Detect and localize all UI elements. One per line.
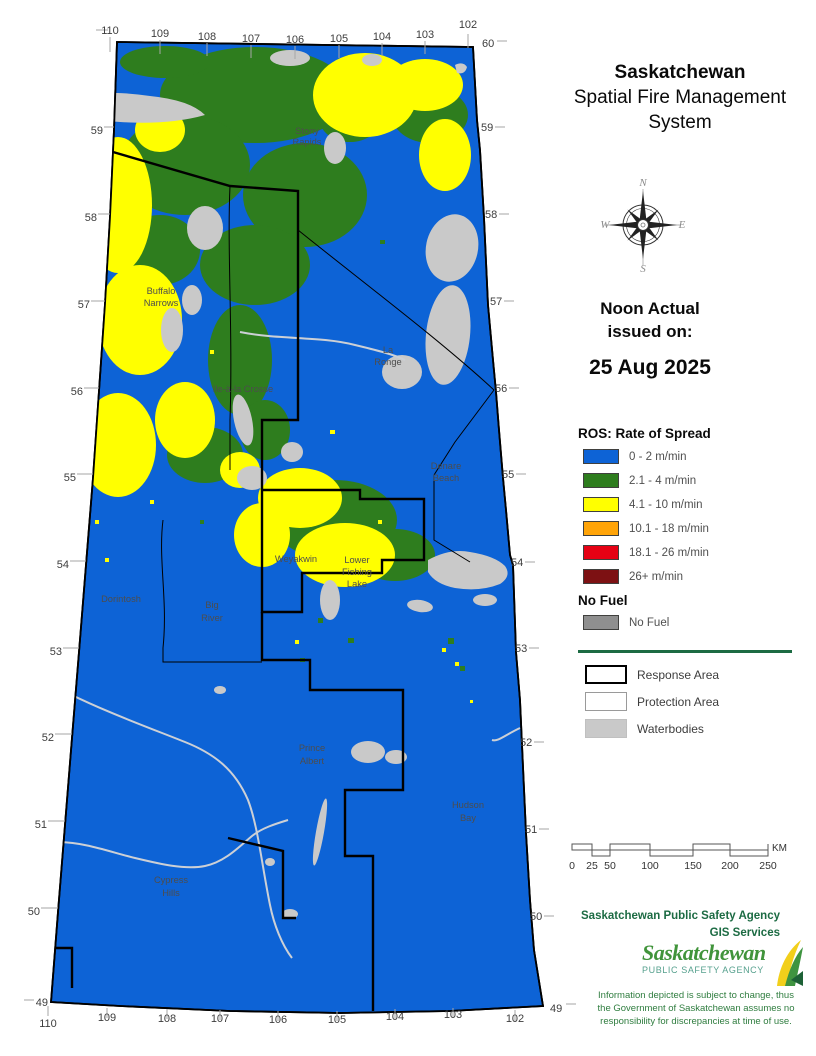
place-denare-beach: Beach [433,473,459,483]
wheat-leaf-icon [772,938,804,988]
lat-label: 60 [482,38,494,50]
legend-row-response-area: Response Area [585,665,719,684]
lat-label: 49 [550,1003,562,1015]
compass-e-label: E [678,219,686,231]
lon-label: 104 [373,31,391,43]
scale-tick-label: 250 [759,860,777,872]
agency-logo: Saskatchewan PUBLIC SAFETY AGENCY [642,942,800,992]
response-area-swatch [585,665,627,684]
lat-label: 58 [485,209,497,221]
place-stony-rapids: Stony [295,126,319,136]
swatch-gray [583,615,619,630]
place-cypress-hills: Cypress [154,875,188,885]
legend-row-10-18: 10.1 - 18 m/min [583,521,711,536]
place-dorintosh: Dorintosh [101,594,141,604]
compass-rose-icon: N E S W [598,177,688,273]
saskatchewan-map: 110 109 108 107 106 105 104 103 102 110 … [0,0,580,1056]
compass-w-label: W [600,219,610,231]
lon-label: 105 [330,33,348,45]
scale-bar: KM 0 25 50 100 150 200 250 [566,838,796,878]
place-denare-beach: Denare [431,461,462,471]
lon-label: 102 [506,1013,524,1025]
issued-line2: issued on: [540,320,760,343]
lon-label: 107 [211,1013,229,1025]
place-lower-fishing-lake: Fishing [342,567,372,577]
disclaimer-line1: Information depicted is subject to chang… [576,989,816,1002]
lat-label: 52 [42,732,54,744]
swatch-red [583,545,619,560]
legend-row-no-fuel: No Fuel [583,615,711,630]
lon-label: 108 [198,31,216,43]
lon-label: 102 [459,19,477,31]
compass-s-label: S [640,263,646,273]
place-weyakwin: Weyakwin [275,554,317,564]
lat-label: 53 [50,646,62,658]
place-ile-a-la-crosse: Ile-à-la Crosse [213,384,273,394]
place-stony-rapids: Rapids [293,137,322,147]
agency-credit: Saskatchewan Public Safety Agency [500,908,780,925]
legend-label: Protection Area [637,695,719,709]
lon-label: 106 [286,34,304,46]
lat-label: 59 [91,125,103,137]
disclaimer-text: Information depicted is subject to chang… [576,989,816,1028]
place-la-ronge: Ronge [374,357,401,367]
scale-tick-label: 0 [569,860,575,872]
lat-label: 59 [481,122,493,134]
swatch-darkred [583,569,619,584]
legend-label: Response Area [637,668,719,682]
lat-label: 58 [85,212,97,224]
no-fuel-header: No Fuel [578,593,711,608]
title-line2: Spatial Fire Management [544,85,816,110]
lon-label: 103 [416,29,434,41]
place-hudson-bay: Bay [460,813,476,823]
place-prince-albert: Prince [299,743,325,753]
legend-label: 2.1 - 4 m/min [629,475,696,487]
lat-label: 49 [36,997,48,1009]
lon-label: 107 [242,33,260,45]
legend-label: Waterbodies [637,722,704,736]
lat-label: 55 [64,472,76,484]
place-big-river: River [201,613,223,623]
place-big-river: Big [205,600,218,610]
legend-row-26plus: 26+ m/min [583,569,711,584]
issued-line1: Noon Actual [540,297,760,320]
lon-label: 110 [39,1018,57,1030]
lat-label: 51 [35,819,47,831]
map-sheet: 110 109 108 107 106 105 104 103 102 110 … [0,0,816,1056]
lat-label: 50 [28,906,40,918]
lon-label: 108 [158,1013,176,1025]
legend-row-protection-area: Protection Area [585,692,719,711]
scale-tick-label: 100 [641,860,659,872]
lat-label: 57 [490,296,502,308]
title-line1: Saskatchewan [544,60,816,85]
ros-legend: ROS: Rate of Spread 0 - 2 m/min 2.1 - 4 … [583,426,711,639]
map-title: Saskatchewan Spatial Fire Management Sys… [544,60,816,135]
place-cypress-hills: Hills [162,888,180,898]
lon-label: 104 [386,1011,404,1023]
scale-tick-label: 200 [721,860,739,872]
title-line3: System [544,110,816,135]
disclaimer-line3: responsibility for discrepancies at time… [576,1015,816,1028]
legend-label: 10.1 - 18 m/min [629,523,709,535]
legend-row-18-26: 18.1 - 26 m/min [583,545,711,560]
place-buffalo-narrows: Buffalo [147,286,176,296]
lon-label: 106 [269,1014,287,1026]
legend-row-waterbodies: Waterbodies [585,719,719,738]
ros-legend-header: ROS: Rate of Spread [578,426,711,441]
swatch-orange [583,521,619,536]
lon-label: 105 [328,1014,346,1026]
place-prince-albert: Albert [300,756,325,766]
lon-label: 109 [151,28,169,40]
area-legend: Response Area Protection Area Waterbodie… [585,665,719,746]
lat-label: 54 [511,557,523,569]
lon-label: 109 [98,1012,116,1024]
place-hudson-bay: Hudson [452,800,484,810]
lat-label: 56 [71,386,83,398]
legend-label: 18.1 - 26 m/min [629,547,709,559]
waterbodies-swatch [585,719,627,738]
issued-date: 25 Aug 2025 [540,356,760,379]
lon-label: 103 [444,1009,462,1021]
place-lower-fishing-lake: Lower [344,555,369,565]
lat-label: 57 [78,299,90,311]
lon-label: 110 [101,25,119,37]
legend-label: 0 - 2 m/min [629,451,687,463]
compass-n-label: N [638,177,647,189]
lat-label: 53 [515,643,527,655]
legend-label: 26+ m/min [629,571,683,583]
scale-tick-label: 25 [586,860,598,872]
legend-label: 4.1 - 10 m/min [629,499,703,511]
issued-block: Noon Actual issued on: 25 Aug 2025 [540,297,760,379]
legend-divider [578,650,792,653]
lat-label: 56 [495,383,507,395]
lat-label: 55 [502,469,514,481]
scale-unit-label: KM [772,843,787,854]
lat-label: 51 [525,824,537,836]
credits-block: Saskatchewan Public Safety Agency GIS Se… [500,908,780,942]
legend-label: No Fuel [629,617,669,629]
protection-area-swatch [585,692,627,711]
scale-tick-label: 50 [604,860,616,872]
legend-row-2-4: 2.1 - 4 m/min [583,473,711,488]
swatch-blue [583,449,619,464]
swatch-green [583,473,619,488]
swatch-yellow [583,497,619,512]
legend-row-4-10: 4.1 - 10 m/min [583,497,711,512]
lat-label: 54 [57,559,69,571]
lat-label: 52 [520,737,532,749]
place-buffalo-narrows: Narrows [144,298,179,308]
place-lower-fishing-lake: Lake [347,579,367,589]
scale-tick-label: 150 [684,860,702,872]
place-la-ronge: La [383,345,394,355]
legend-row-0-2: 0 - 2 m/min [583,449,711,464]
disclaimer-line2: the Government of Saskatchewan assumes n… [576,1002,816,1015]
